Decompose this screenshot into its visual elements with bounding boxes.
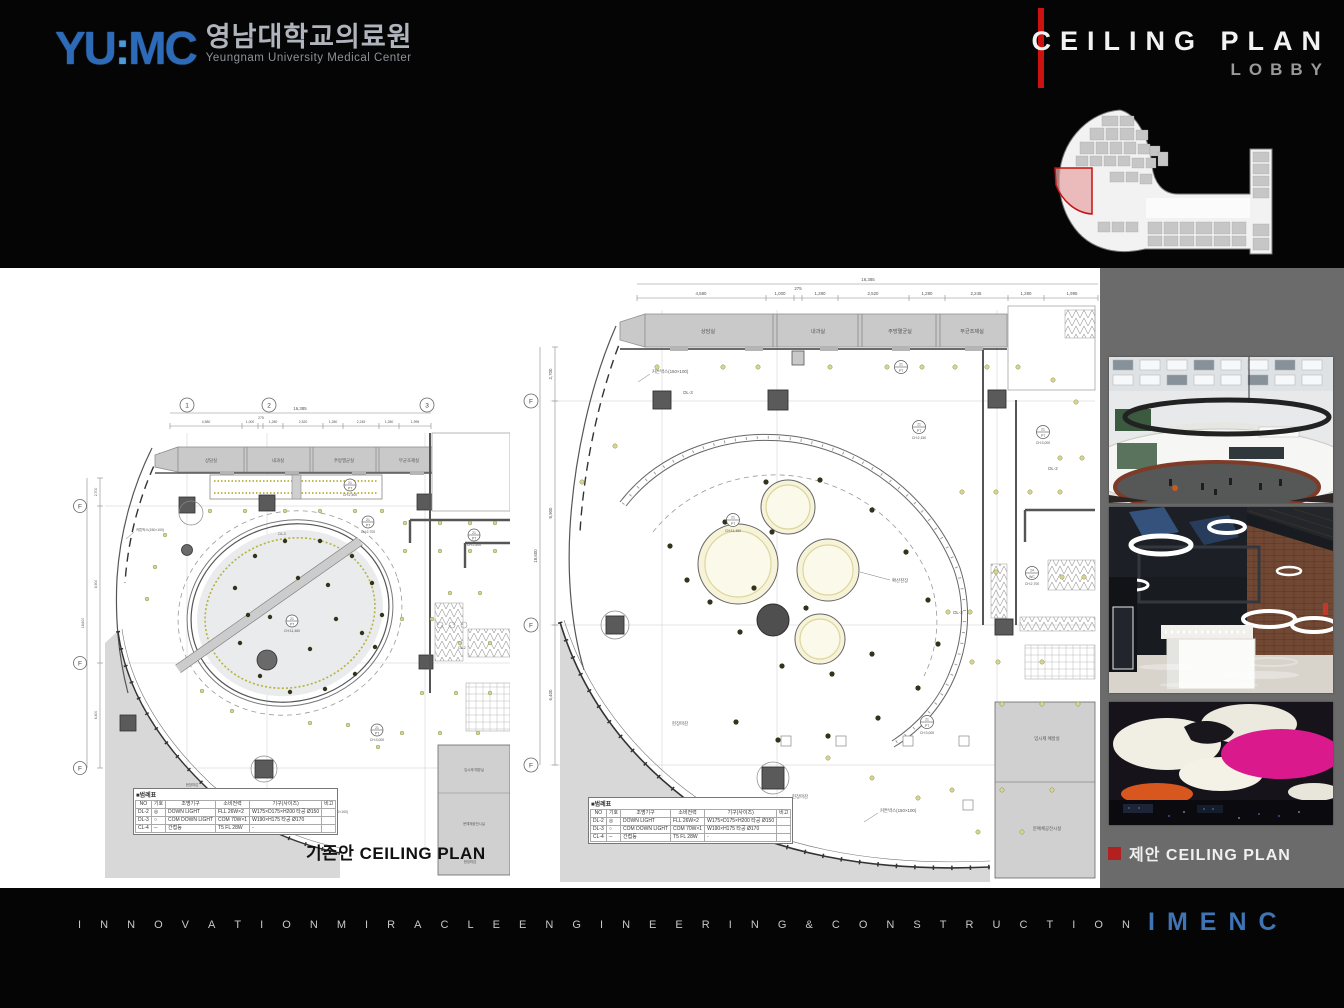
yumc-logo: YU:MC 영남대학교의료원 Yeungnam University Medic… bbox=[55, 22, 413, 74]
grid-bubbles-left: F F F bbox=[74, 500, 87, 775]
legend-table-existing: ■범례표NO기호조명기구소비전력기구(사이즈)비고DL-2◎DOWN LIGHT… bbox=[133, 788, 338, 835]
svg-text:2,520: 2,520 bbox=[299, 420, 308, 424]
svg-text:1,280: 1,280 bbox=[815, 291, 827, 296]
svg-text:상담실: 상담실 bbox=[701, 327, 716, 335]
svg-text:CH:2,400: CH:2,400 bbox=[467, 543, 481, 547]
header-band: YU:MC 영남대학교의료원 Yeungnam University Medic… bbox=[0, 0, 1344, 268]
legend-title: ■범례표 bbox=[591, 799, 790, 808]
svg-text:커튼박스(150×100): 커튼박스(150×100) bbox=[652, 368, 689, 375]
red-square-bullet bbox=[1108, 847, 1121, 860]
svg-text:현장마감: 현장마감 bbox=[186, 782, 198, 787]
svg-text:16,385: 16,385 bbox=[293, 406, 307, 411]
room-band: 상담실 내과실 주방멸균실 무균조제실 bbox=[155, 447, 441, 475]
footer-band: INNOVATIONMIRACLEENGINEERING&CONSTRUCTIO… bbox=[0, 888, 1344, 1008]
round-column-disc bbox=[757, 604, 789, 636]
page-title: CEILING PLAN bbox=[1030, 26, 1330, 57]
svg-text:1,995: 1,995 bbox=[1067, 291, 1079, 296]
svg-text:18,600: 18,600 bbox=[533, 549, 538, 563]
svg-text:21: 21 bbox=[731, 516, 735, 520]
svg-text:현장마감: 현장마감 bbox=[792, 793, 808, 800]
svg-text:4,580: 4,580 bbox=[696, 291, 708, 296]
svg-text:1,280: 1,280 bbox=[922, 291, 934, 296]
svg-text:2,700: 2,700 bbox=[548, 368, 553, 380]
svg-text:1,280: 1,280 bbox=[269, 420, 278, 424]
svg-text:6,400: 6,400 bbox=[548, 689, 553, 701]
svg-text:커튼박스(150×100): 커튼박스(150×100) bbox=[136, 527, 164, 532]
svg-text:16,385: 16,385 bbox=[861, 277, 875, 282]
svg-text:CH:3,000: CH:3,000 bbox=[920, 731, 934, 735]
svg-text:PT: PT bbox=[899, 369, 903, 373]
ceiling-speaker-squares bbox=[781, 736, 973, 810]
svg-text:8,900: 8,900 bbox=[94, 580, 98, 589]
svg-text:4,580: 4,580 bbox=[202, 420, 211, 424]
svg-text:1,995: 1,995 bbox=[411, 420, 420, 424]
grid-bubbles-left: F F F bbox=[524, 394, 538, 772]
svg-text:F: F bbox=[78, 661, 82, 668]
company-tagline: INNOVATIONMIRACLEENGINEERING&CONSTRUCTIO… bbox=[78, 919, 1130, 931]
svg-text:DL-2: DL-2 bbox=[1048, 466, 1058, 471]
svg-text:DL-2: DL-2 bbox=[458, 646, 465, 650]
svg-text:현장마감: 현장마감 bbox=[672, 720, 688, 727]
circle-ceiling-features bbox=[698, 480, 859, 664]
svg-text:PT: PT bbox=[375, 732, 379, 736]
ellipse-ceiling-feature bbox=[151, 482, 428, 744]
svg-text:DL-3: DL-3 bbox=[683, 390, 693, 395]
yumc-logo-mark: YU:MC bbox=[55, 22, 196, 74]
svg-text:2,245: 2,245 bbox=[971, 291, 983, 296]
grid-bubbles-top: 1 2 3 bbox=[180, 398, 434, 412]
legend-title: ■범례표 bbox=[136, 790, 335, 799]
room-band: 상담실 내과실 주방멸균실 무균조제실 bbox=[620, 314, 1007, 365]
svg-text:DL-3: DL-3 bbox=[278, 532, 285, 536]
svg-text:F: F bbox=[529, 763, 533, 770]
svg-text:PT: PT bbox=[917, 429, 921, 433]
svg-text:커튼박스(150×100): 커튼박스(150×100) bbox=[880, 807, 917, 814]
legend-table-proposed: ■범례표NO기호조명기구소비전력기구(사이즈)비고DL-2◎DOWN LIGHT… bbox=[588, 797, 793, 844]
key-plan-map bbox=[1050, 102, 1275, 259]
svg-text:CH:11,460: CH:11,460 bbox=[725, 529, 741, 533]
existing-plan-caption: 기존안 CEILING PLAN bbox=[306, 839, 486, 864]
svg-text:18,600: 18,600 bbox=[81, 618, 85, 628]
svg-text:임시제 예방실: 임시제 예방실 bbox=[464, 767, 484, 772]
svg-text:CH:2,700: CH:2,700 bbox=[1025, 582, 1039, 586]
svg-text:문예체공전시실: 문예체공전시실 bbox=[463, 821, 485, 826]
svg-text:6,400: 6,400 bbox=[94, 711, 98, 720]
svg-text:확산천장: 확산천장 bbox=[892, 577, 908, 584]
svg-text:PT: PT bbox=[366, 524, 370, 528]
svg-text:1,000: 1,000 bbox=[246, 420, 255, 424]
svg-text:F: F bbox=[529, 623, 533, 630]
legend-table: NO기호조명기구소비전력기구(사이즈)비고DL-2◎DOWN LIGHTFLL … bbox=[590, 809, 791, 842]
svg-text:임시제 예방실: 임시제 예방실 bbox=[1034, 735, 1059, 742]
svg-text:PT: PT bbox=[731, 522, 735, 526]
svg-text:21: 21 bbox=[366, 518, 370, 522]
svg-text:3: 3 bbox=[425, 403, 429, 410]
svg-text:21: 21 bbox=[917, 423, 921, 427]
proposed-plan-caption: 제안 CEILING PLAN bbox=[1108, 841, 1291, 865]
round-column bbox=[257, 650, 277, 670]
svg-text:주방멸균실: 주방멸균실 bbox=[888, 327, 912, 335]
svg-text:주방멸균실: 주방멸균실 bbox=[334, 457, 354, 464]
svg-text:1,280: 1,280 bbox=[385, 420, 394, 424]
svg-text:21: 21 bbox=[348, 481, 352, 485]
svg-text:DL-3: DL-3 bbox=[953, 610, 963, 615]
svg-text:내과실: 내과실 bbox=[811, 327, 826, 335]
photo-ring-lights-hall bbox=[1109, 507, 1333, 693]
imenc-logo: IMENC bbox=[1148, 908, 1289, 937]
svg-text:PT: PT bbox=[925, 724, 929, 728]
svg-text:275: 275 bbox=[258, 416, 264, 420]
reference-sidebar: 제안 CEILING PLAN bbox=[1100, 268, 1344, 888]
svg-text:PT: PT bbox=[1041, 434, 1045, 438]
svg-text:21: 21 bbox=[899, 363, 903, 367]
svg-text:PT: PT bbox=[348, 487, 352, 491]
svg-text:21: 21 bbox=[925, 718, 929, 722]
hospital-name-kr: 영남대학교의료원 bbox=[206, 22, 413, 52]
svg-text:21: 21 bbox=[472, 531, 476, 535]
svg-text:PT: PT bbox=[472, 537, 476, 541]
legend-table: NO기호조명기구소비전력기구(사이즈)비고DL-2◎DOWN LIGHTFLL … bbox=[135, 800, 336, 833]
svg-text:8,900: 8,900 bbox=[548, 507, 553, 519]
svg-text:1,280: 1,280 bbox=[329, 420, 338, 424]
keymap-lobby-highlight bbox=[1055, 168, 1092, 214]
svg-text:무균조제실: 무균조제실 bbox=[399, 457, 419, 464]
svg-text:275: 275 bbox=[794, 286, 802, 291]
svg-text:상담실: 상담실 bbox=[205, 457, 217, 463]
photo-colored-disc-ceiling bbox=[1109, 702, 1333, 825]
svg-text:2,700: 2,700 bbox=[94, 488, 98, 497]
svg-text:CH:11,460: CH:11,460 bbox=[284, 629, 300, 633]
svg-text:내과실: 내과실 bbox=[272, 457, 284, 464]
svg-text:2,520: 2,520 bbox=[868, 291, 880, 296]
svg-text:1,280: 1,280 bbox=[1021, 291, 1033, 296]
svg-text:CH:2,700: CH:2,700 bbox=[361, 530, 375, 534]
svg-text:문예체공전시실: 문예체공전시실 bbox=[1033, 825, 1061, 832]
svg-text:CH:3,000: CH:3,000 bbox=[1036, 441, 1050, 445]
svg-text:CH:3,000: CH:3,000 bbox=[370, 738, 384, 742]
svg-text:CH:2,150: CH:2,150 bbox=[912, 436, 926, 440]
svg-text:2: 2 bbox=[267, 403, 271, 410]
presentation-slide: YU:MC 영남대학교의료원 Yeungnam University Medic… bbox=[0, 0, 1344, 1008]
svg-text:F: F bbox=[78, 766, 82, 773]
svg-text:24: 24 bbox=[1030, 569, 1034, 573]
svg-text:2,245: 2,245 bbox=[357, 420, 366, 424]
svg-text:21: 21 bbox=[290, 617, 294, 621]
svg-text:CH:2,400: CH:2,400 bbox=[343, 493, 357, 497]
svg-text:21: 21 bbox=[375, 726, 379, 730]
svg-text:무균조제실: 무균조제실 bbox=[960, 327, 984, 335]
photo-atrium-ring-chandelier bbox=[1109, 357, 1333, 503]
svg-text:WC: WC bbox=[1029, 575, 1035, 579]
title-block: CEILING PLAN LOBBY bbox=[1030, 8, 1330, 80]
svg-text:1,000: 1,000 bbox=[775, 291, 787, 296]
svg-text:F: F bbox=[78, 504, 82, 511]
page-subtitle: LOBBY bbox=[1030, 60, 1330, 80]
hospital-name-en: Yeungnam University Medical Center bbox=[206, 52, 413, 64]
svg-text:F: F bbox=[529, 399, 533, 406]
content-area: 16,385 4,580 1,000 275 1,280 2,520 1,280… bbox=[0, 268, 1344, 888]
svg-text:1: 1 bbox=[185, 403, 189, 410]
svg-text:PT: PT bbox=[290, 623, 294, 627]
svg-text:21: 21 bbox=[1041, 428, 1045, 432]
